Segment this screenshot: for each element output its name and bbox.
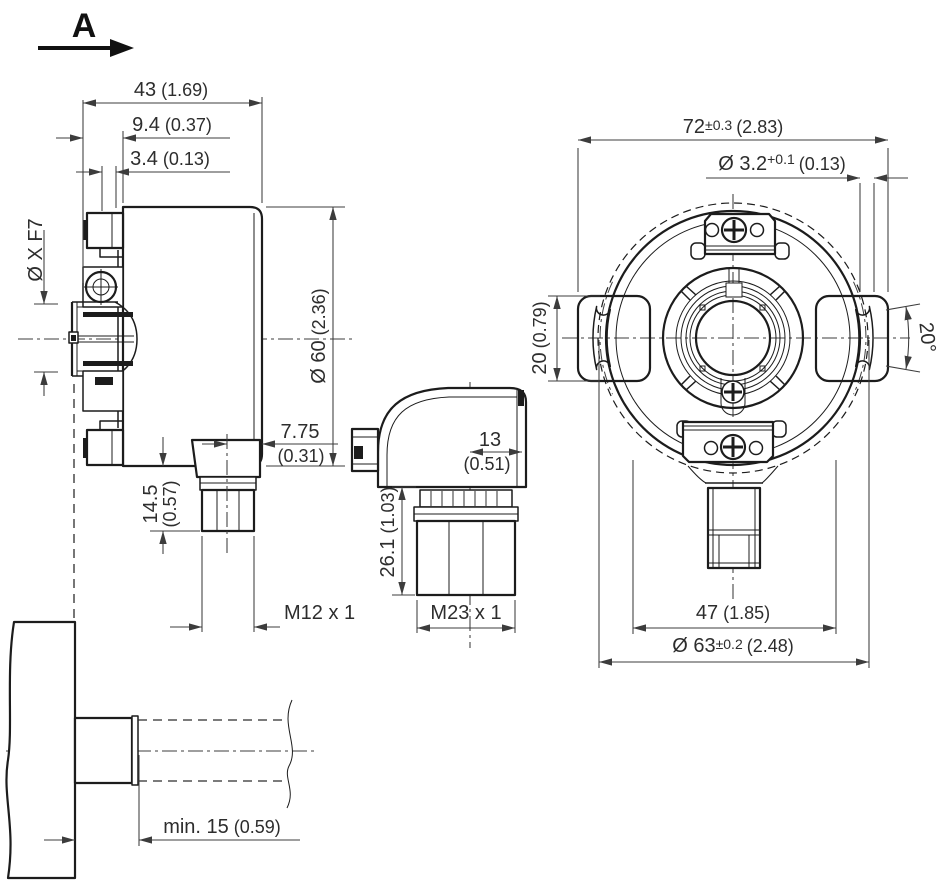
motor-shaft-stub	[75, 718, 132, 783]
svg-text:7.75: 7.75	[281, 421, 320, 443]
encoder-housing-body	[123, 207, 262, 466]
top-tab-notch	[83, 220, 88, 240]
svg-text:47(1.85): 47(1.85)	[696, 602, 770, 624]
svg-text:20(0.79): 20(0.79)	[529, 301, 551, 374]
view-direction-label: A	[72, 7, 97, 45]
m12-connector-boss	[192, 440, 260, 477]
svg-text:26.1(1.03): 26.1(1.03)	[377, 487, 399, 578]
shaft-end-face	[132, 716, 138, 785]
keyway-notch	[726, 283, 742, 297]
svg-text:3.4(0.13): 3.4(0.13)	[130, 148, 210, 170]
svg-text:13: 13	[479, 429, 501, 451]
svg-text:9.4(0.37): 9.4(0.37)	[132, 114, 212, 136]
top-mounting-tab	[87, 213, 123, 248]
svg-text:(0.57): (0.57)	[160, 480, 180, 527]
coupling-slit-lower	[83, 361, 133, 366]
encoder-dimensional-drawing: A	[0, 0, 940, 883]
svg-text:Ø 60(2.36): Ø 60(2.36)	[308, 288, 330, 383]
bottom-mounting-tab	[87, 430, 123, 465]
bottom-tab-notch	[83, 438, 88, 458]
svg-text:Ø X F7: Ø X F7	[25, 218, 47, 281]
top-clamp-plate	[691, 214, 789, 259]
svg-text:43(1.69): 43(1.69)	[134, 79, 208, 101]
dim-thread-m23: M23 x 1	[417, 600, 515, 633]
svg-text:(0.51): (0.51)	[463, 454, 510, 474]
m23-hex-nut	[417, 521, 515, 595]
m12-hex-nut	[202, 490, 254, 531]
svg-text:14.5: 14.5	[140, 485, 162, 524]
m23-gland-ring	[420, 490, 512, 507]
svg-text:M23 x 1: M23 x 1	[430, 602, 501, 624]
svg-text:(0.31): (0.31)	[277, 446, 324, 466]
svg-text:M12 x 1: M12 x 1	[284, 602, 355, 624]
technical-drawing-canvas: A	[0, 0, 940, 883]
svg-text:20°: 20°	[914, 321, 939, 353]
bottom-clamp-plate	[677, 421, 786, 462]
svg-text:min. 15(0.59): min. 15(0.59)	[163, 816, 281, 838]
coupling-slit-upper	[83, 312, 133, 317]
